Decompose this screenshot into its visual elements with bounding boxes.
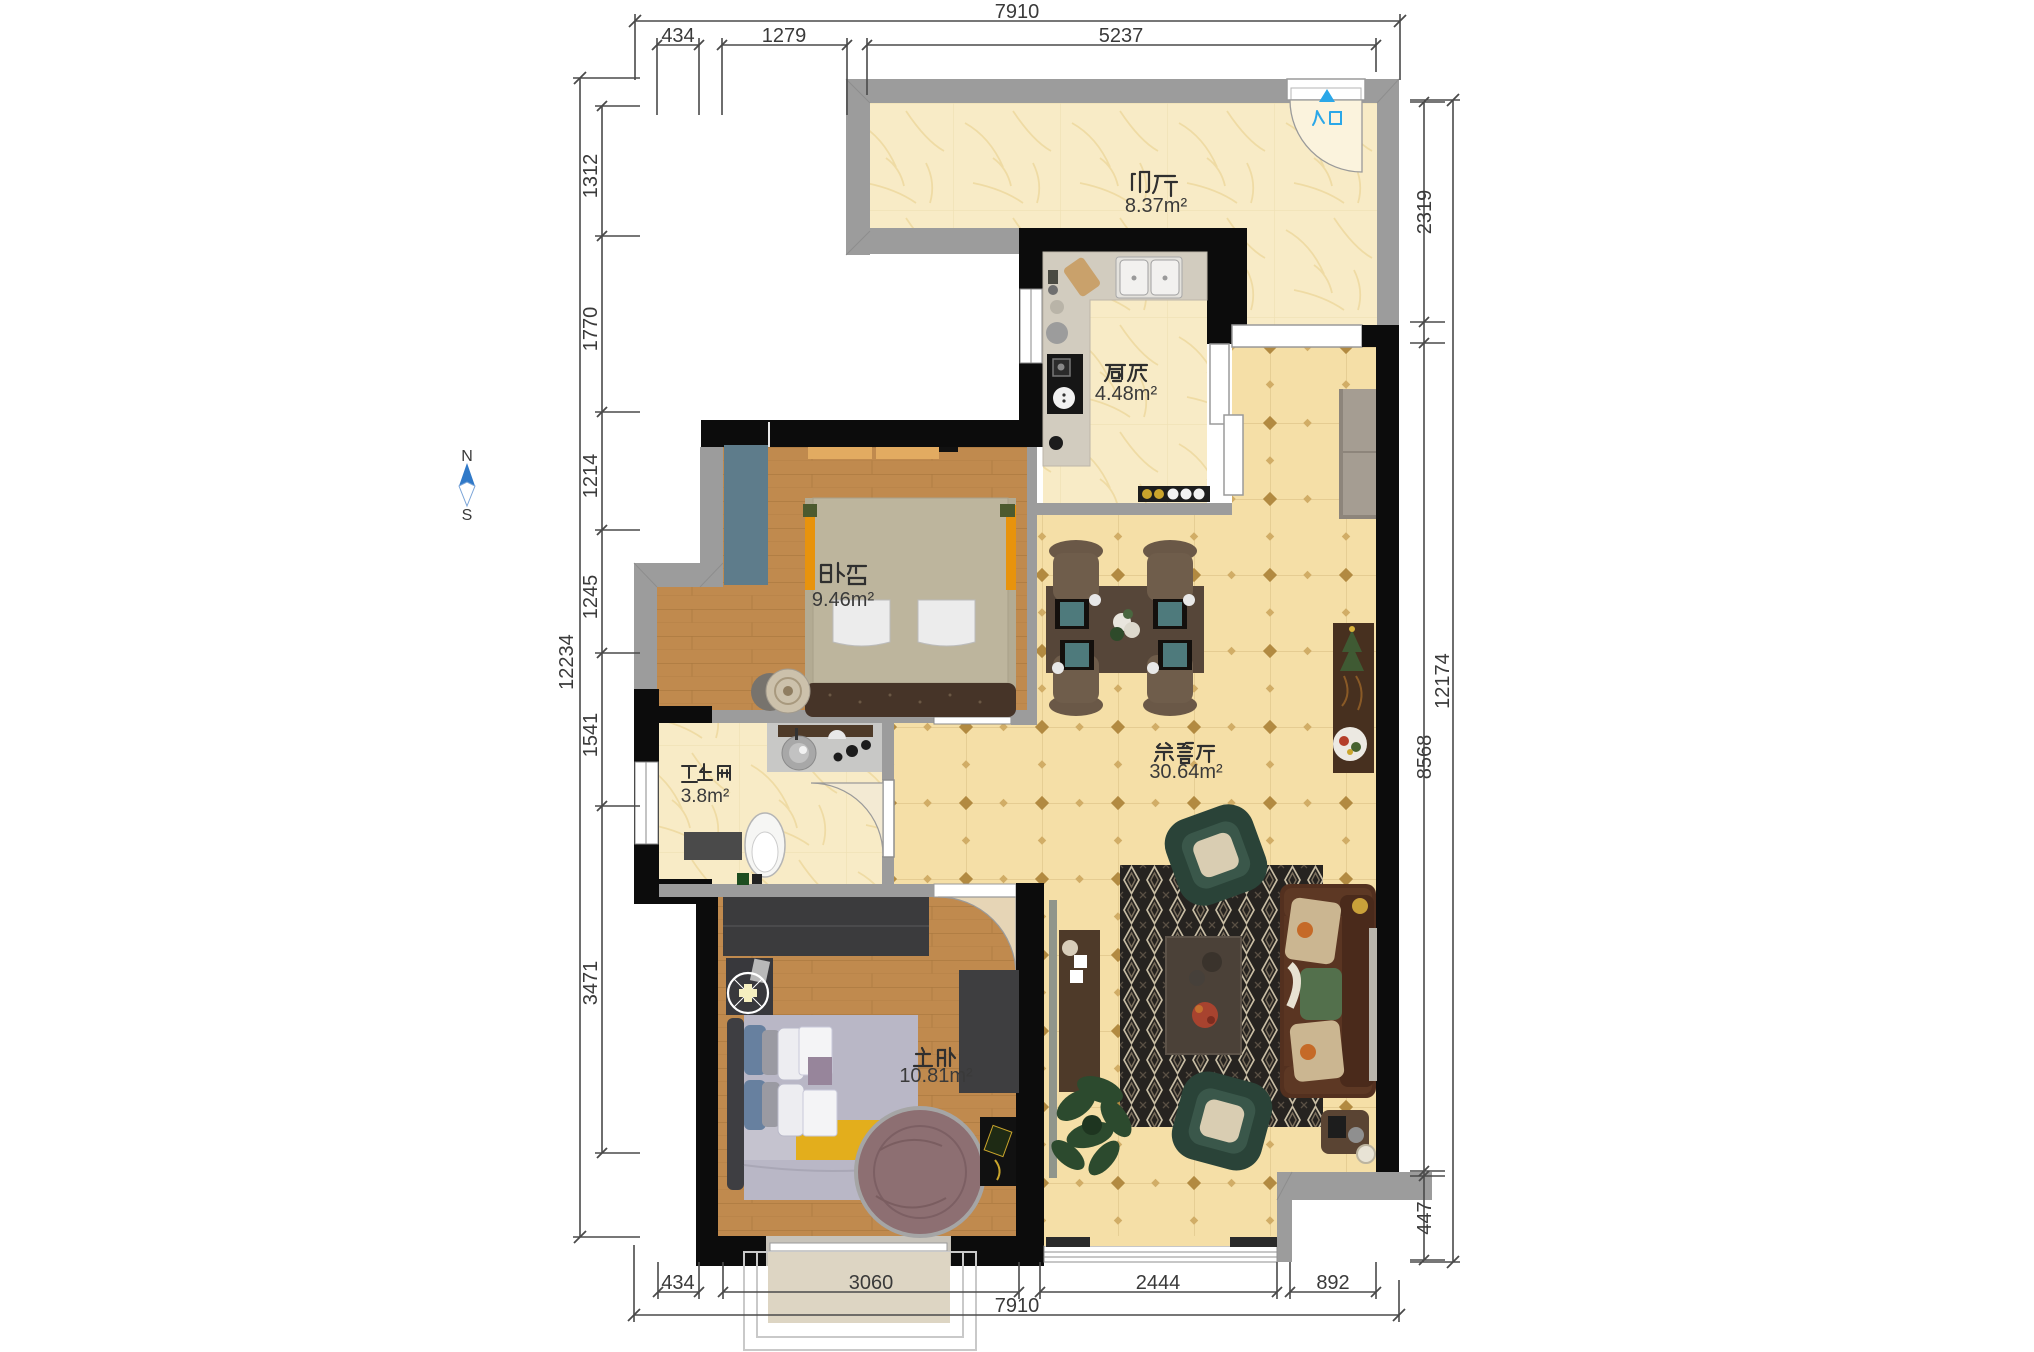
svg-text:3060: 3060 [849, 1272, 894, 1294]
svg-text:30.64m²: 30.64m² [1149, 761, 1223, 783]
svg-text:10.81m²: 10.81m² [899, 1065, 973, 1087]
svg-text:2444: 2444 [1136, 1272, 1181, 1294]
svg-text:3471: 3471 [580, 961, 602, 1006]
svg-text:892: 892 [1316, 1272, 1349, 1294]
svg-text:S: S [462, 507, 473, 524]
svg-text:1770: 1770 [580, 307, 602, 352]
svg-text:1312: 1312 [580, 154, 602, 199]
svg-text:1279: 1279 [762, 25, 807, 47]
svg-text:1541: 1541 [580, 713, 602, 758]
svg-text:8568: 8568 [1414, 735, 1436, 780]
svg-text:7910: 7910 [995, 1, 1040, 23]
svg-text:434: 434 [661, 25, 694, 47]
svg-text:1245: 1245 [580, 575, 602, 620]
svg-text:12234: 12234 [556, 634, 578, 690]
svg-text:8.37m²: 8.37m² [1125, 195, 1188, 217]
svg-text:7910: 7910 [995, 1295, 1040, 1317]
svg-text:4.48m²: 4.48m² [1095, 383, 1158, 405]
svg-text:447: 447 [1414, 1201, 1436, 1234]
svg-text:1214: 1214 [580, 454, 602, 499]
svg-text:12174: 12174 [1432, 653, 1454, 709]
svg-text:434: 434 [661, 1272, 694, 1294]
svg-text:5237: 5237 [1099, 25, 1144, 47]
svg-text:9.46m²: 9.46m² [812, 589, 875, 611]
svg-text:3.8m²: 3.8m² [681, 786, 730, 807]
svg-text:2319: 2319 [1414, 190, 1436, 235]
svg-text:N: N [461, 448, 473, 465]
